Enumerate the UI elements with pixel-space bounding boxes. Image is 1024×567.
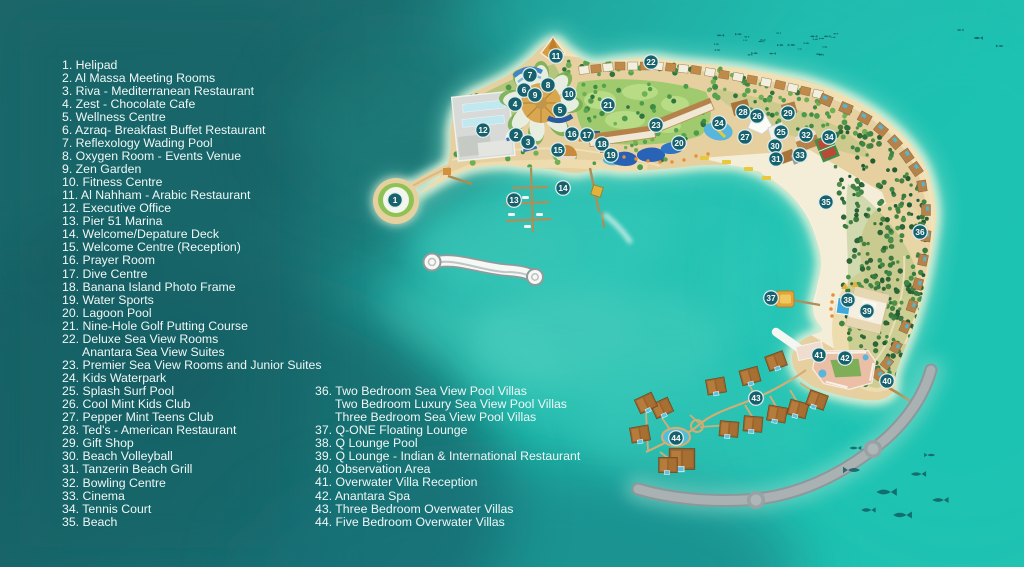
svg-text:6: 6 bbox=[522, 85, 527, 95]
svg-text:37: 37 bbox=[766, 293, 776, 303]
svg-text:7: 7 bbox=[528, 70, 533, 80]
svg-text:34: 34 bbox=[824, 132, 834, 142]
svg-text:31: 31 bbox=[771, 154, 781, 164]
svg-text:21: 21 bbox=[603, 100, 613, 110]
svg-text:24: 24 bbox=[714, 118, 724, 128]
svg-text:12: 12 bbox=[478, 125, 488, 135]
svg-text:30: 30 bbox=[770, 141, 780, 151]
svg-text:42: 42 bbox=[840, 353, 850, 363]
svg-text:23: 23 bbox=[651, 120, 661, 130]
svg-text:1: 1 bbox=[393, 195, 398, 205]
svg-text:8: 8 bbox=[546, 80, 551, 90]
svg-text:4: 4 bbox=[513, 99, 518, 109]
svg-text:28: 28 bbox=[738, 107, 748, 117]
svg-text:25: 25 bbox=[776, 127, 786, 137]
svg-text:2: 2 bbox=[514, 130, 519, 140]
svg-text:35: 35 bbox=[821, 197, 831, 207]
svg-text:39: 39 bbox=[862, 306, 872, 316]
svg-text:27: 27 bbox=[740, 132, 750, 142]
svg-text:13: 13 bbox=[509, 195, 519, 205]
svg-text:10: 10 bbox=[564, 89, 574, 99]
svg-text:41: 41 bbox=[814, 350, 824, 360]
svg-text:16: 16 bbox=[567, 129, 577, 139]
svg-text:5: 5 bbox=[558, 105, 563, 115]
svg-text:9: 9 bbox=[533, 90, 538, 100]
svg-text:14: 14 bbox=[558, 183, 568, 193]
svg-text:38: 38 bbox=[843, 295, 853, 305]
svg-text:36: 36 bbox=[915, 227, 925, 237]
svg-text:3: 3 bbox=[526, 137, 531, 147]
svg-text:11: 11 bbox=[552, 51, 561, 61]
svg-text:17: 17 bbox=[582, 130, 592, 140]
svg-text:22: 22 bbox=[646, 57, 656, 67]
svg-text:19: 19 bbox=[606, 150, 616, 160]
svg-text:32: 32 bbox=[801, 130, 811, 140]
svg-text:40: 40 bbox=[882, 376, 892, 386]
svg-text:20: 20 bbox=[674, 138, 684, 148]
svg-text:18: 18 bbox=[597, 139, 607, 149]
svg-text:44: 44 bbox=[671, 433, 681, 443]
svg-text:29: 29 bbox=[783, 108, 793, 118]
svg-text:15: 15 bbox=[553, 145, 563, 155]
svg-text:33: 33 bbox=[795, 150, 805, 160]
svg-text:43: 43 bbox=[751, 393, 761, 403]
svg-text:26: 26 bbox=[752, 111, 762, 121]
